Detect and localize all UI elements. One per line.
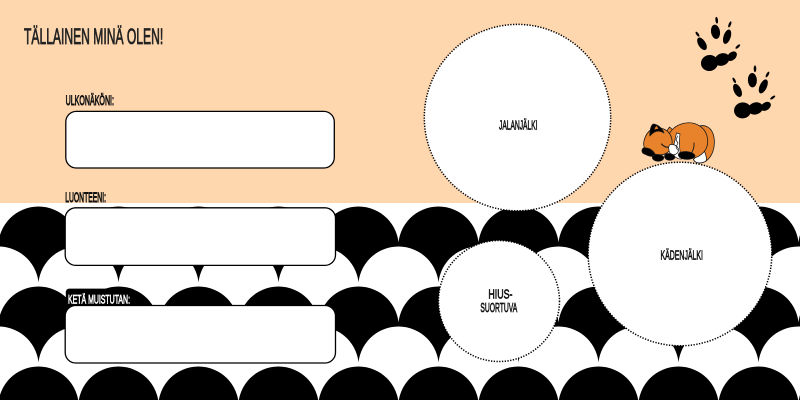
svg-text:JALANJÄLKI: JALANJÄLKI: [499, 119, 538, 133]
svg-text:KÄDENJÄLKI: KÄDENJÄLKI: [661, 249, 704, 263]
svg-text:KETÄ MUISTUTAN:: KETÄ MUISTUTAN:: [68, 294, 130, 307]
svg-text:ULKONÄKÖNI:: ULKONÄKÖNI:: [66, 93, 114, 109]
svg-text:LUONTEENI:: LUONTEENI:: [65, 190, 106, 206]
svg-text:SUORTUVA: SUORTUVA: [480, 301, 517, 315]
svg-text:HIUS-: HIUS-: [488, 288, 512, 302]
svg-text:TÄLLAINEN MINÄ OLEN!: TÄLLAINEN MINÄ OLEN!: [24, 25, 163, 49]
